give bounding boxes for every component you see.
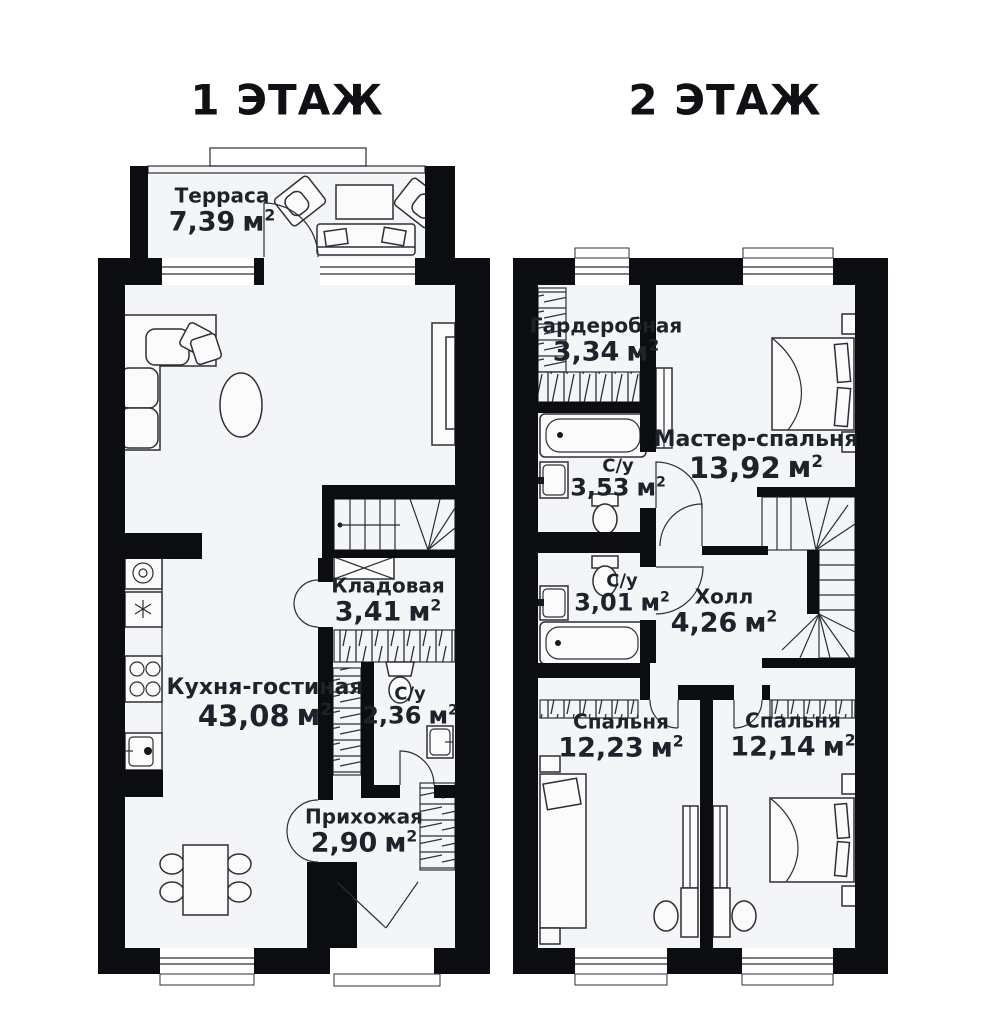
room-label-bathroom3: С/у 3,01м2 <box>574 571 670 616</box>
chair <box>654 901 678 931</box>
desk <box>713 888 730 937</box>
sink <box>540 586 568 620</box>
entrance-opening <box>330 948 434 974</box>
room-label-storage: Кладовая 3,41м2 <box>331 576 444 627</box>
room-label-bathroom2: С/у 3,53м2 <box>570 456 666 501</box>
wardrobe-strip <box>538 372 640 402</box>
kitchen-appliances <box>125 557 162 770</box>
nightstand <box>842 774 856 794</box>
room-label-bathroom1: С/у 2,36м2 <box>362 684 458 729</box>
desk <box>681 888 698 937</box>
room-label-hallway: Прихожая 2,90м2 <box>305 807 423 858</box>
room-label-wardrobe: Гардеробная 3,34м2 <box>530 316 682 367</box>
wardrobe-strip <box>334 630 455 662</box>
floor1-title: 1 ЭТАЖ <box>190 76 383 125</box>
room-label-hall: Холл 4,26м2 <box>671 587 778 638</box>
room-label-bedroom2: Спальня 12,14м2 <box>730 711 855 762</box>
room-label-kitchen-living: Кухня-гостиная 43,08м2 <box>167 676 364 732</box>
sink <box>540 462 568 498</box>
room-label-master-bedroom: Мастер-спальня 13,92м2 <box>654 428 859 484</box>
floor1-plan <box>98 148 490 986</box>
room-label-terrace: Терраса 7,39м2 <box>169 186 276 237</box>
floorplan-page: 1 ЭТАЖ 2 ЭТАЖ Терраса 7,39м2 Кухня-гости… <box>0 0 1000 1033</box>
nightstand <box>842 314 856 334</box>
toilet <box>386 662 414 676</box>
chair <box>732 901 756 931</box>
room-label-bedroom1: Спальня 12,23м2 <box>558 712 683 763</box>
nightstand <box>842 886 856 906</box>
dining-table <box>183 845 228 915</box>
coffee-table <box>220 373 262 437</box>
bathtub <box>540 414 646 457</box>
floorplan-canvas <box>0 0 1000 1033</box>
terrace-table <box>336 185 393 219</box>
floor2-title: 2 ЭТАЖ <box>628 76 821 125</box>
